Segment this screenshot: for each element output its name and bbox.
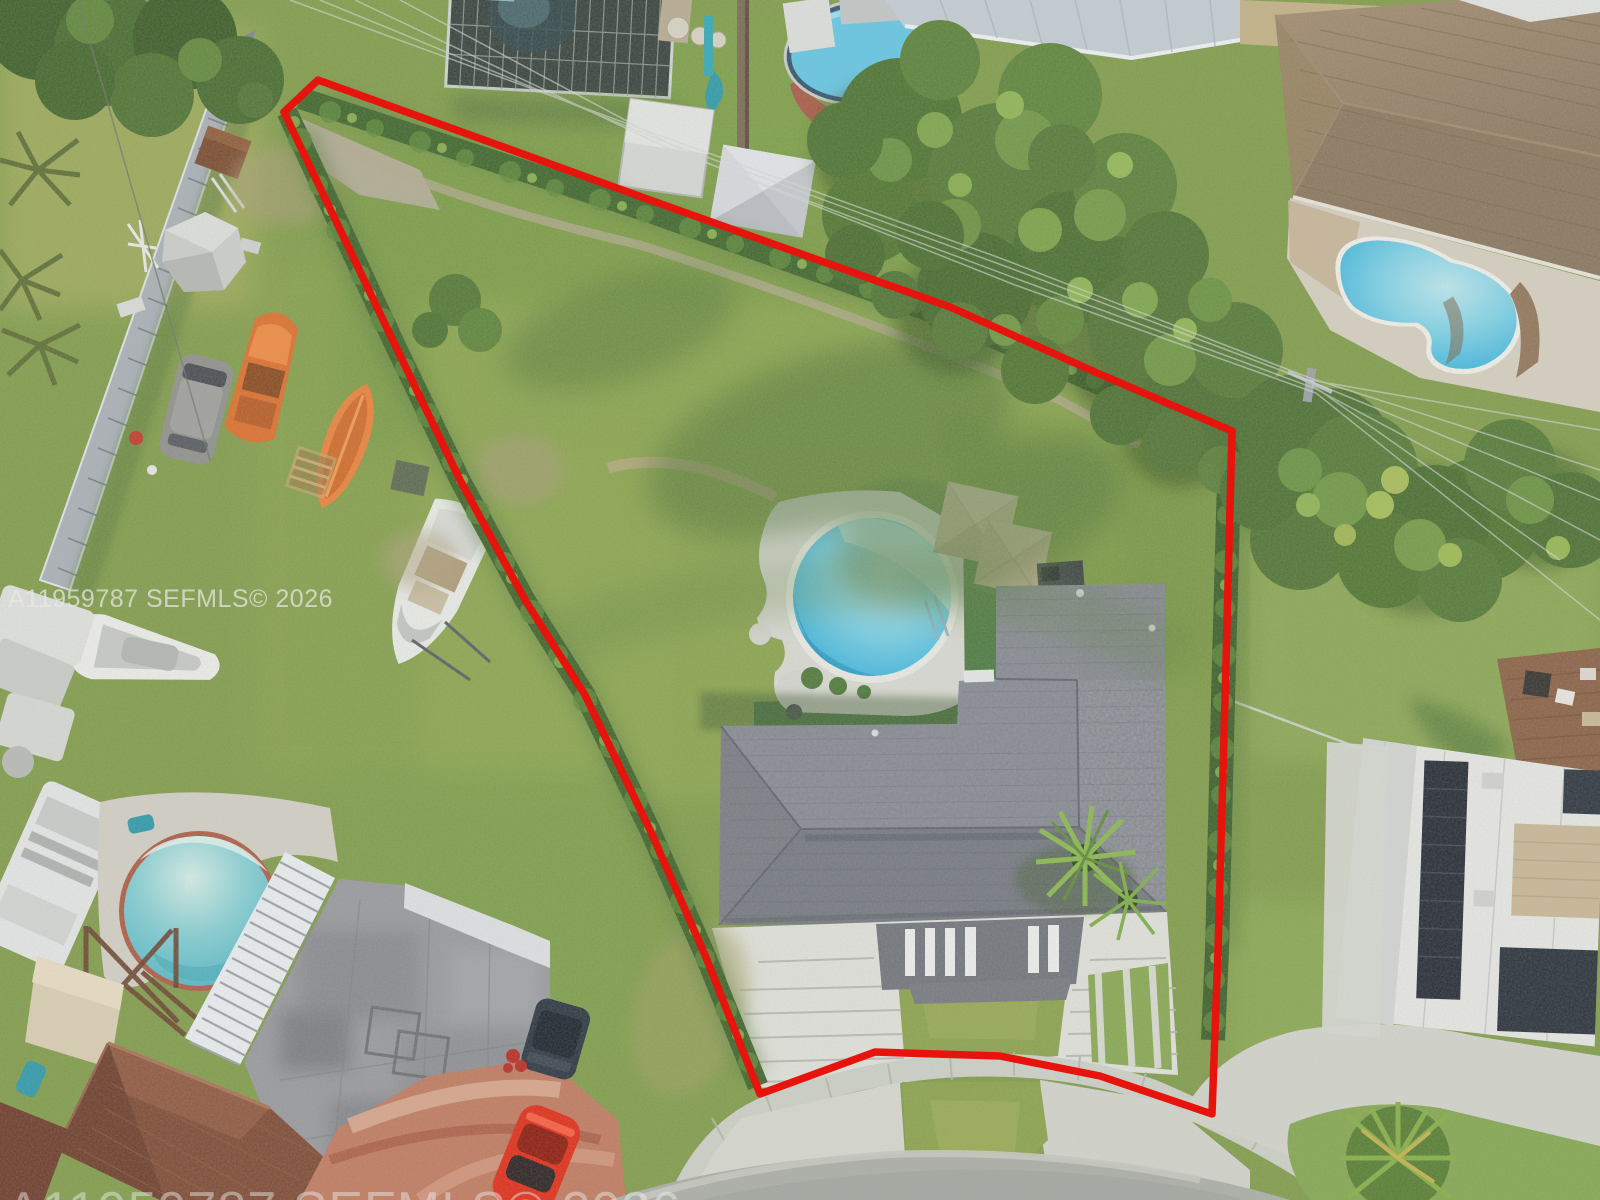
svg-text:A11959787 SEFMLS© 2026: A11959787 SEFMLS© 2026 — [6, 1182, 681, 1200]
svg-text:A11959787 SEFMLS© 2026: A11959787 SEFMLS© 2026 — [8, 585, 333, 613]
